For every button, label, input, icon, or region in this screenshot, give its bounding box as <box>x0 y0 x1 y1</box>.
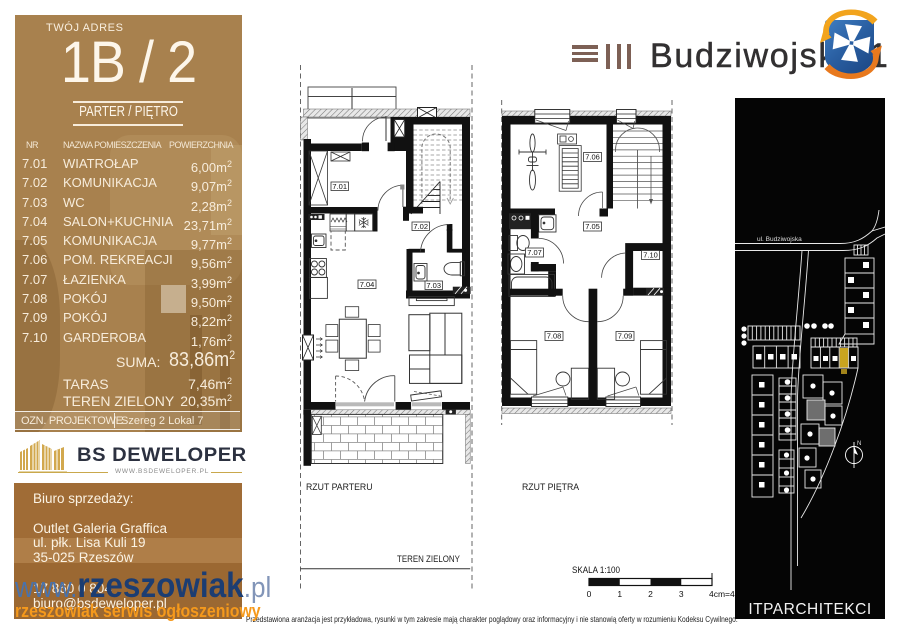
svg-text:7.02: 7.02 <box>413 222 428 231</box>
svg-text:7.06: 7.06 <box>585 153 600 162</box>
svg-text:7.04: 7.04 <box>360 280 375 289</box>
svg-text:1: 1 <box>617 589 622 599</box>
svg-text:N: N <box>857 441 861 447</box>
svg-text:7.10: 7.10 <box>643 251 658 260</box>
svg-text:7.01: 7.01 <box>332 182 347 191</box>
svg-text:7.08: 7.08 <box>547 332 562 341</box>
svg-text:ul. Budziwojska: ul. Budziwojska <box>757 236 802 243</box>
svg-text:7.05: 7.05 <box>585 222 600 231</box>
svg-text:7.03: 7.03 <box>426 281 441 290</box>
svg-text:0: 0 <box>587 589 592 599</box>
svg-text:3: 3 <box>679 589 684 599</box>
svg-text:7.07: 7.07 <box>527 248 542 257</box>
svg-text:2: 2 <box>648 589 653 599</box>
svg-text:7.09: 7.09 <box>618 332 633 341</box>
